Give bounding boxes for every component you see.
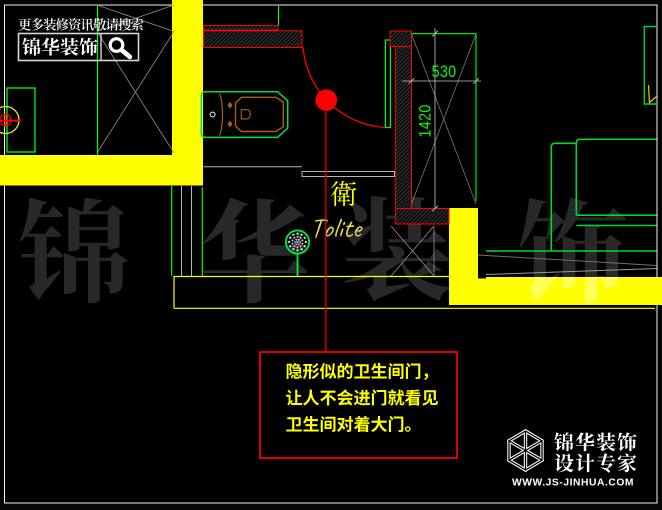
svg-text:WWW.JS-JINHUA.COM: WWW.JS-JINHUA.COM: [512, 478, 634, 489]
svg-text:530: 530: [432, 63, 457, 81]
svg-text:1420: 1420: [416, 104, 434, 137]
